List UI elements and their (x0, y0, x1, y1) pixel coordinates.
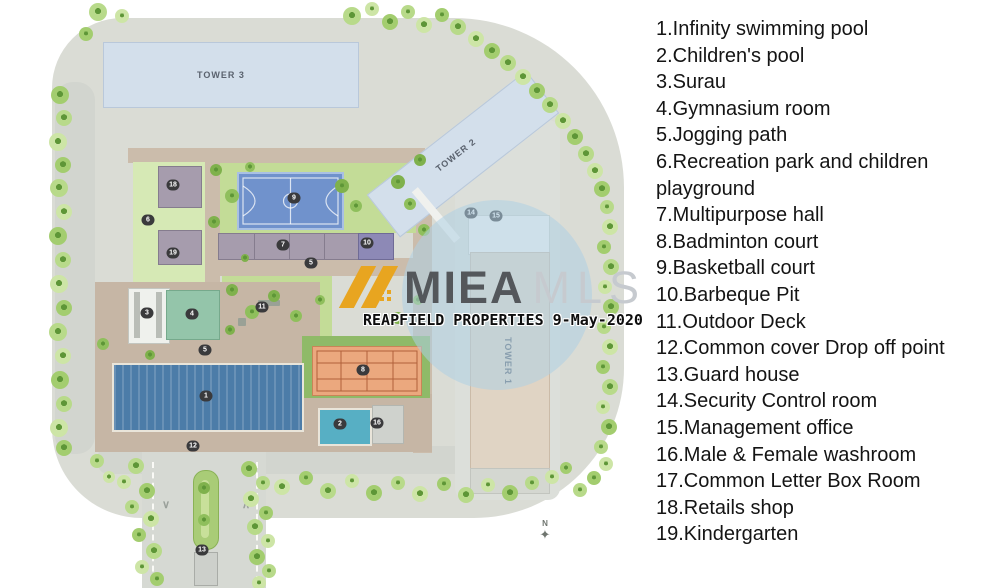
tree-icon (596, 400, 610, 414)
plan-marker: 19 (167, 248, 180, 259)
plan-marker: 2 (334, 419, 347, 430)
plan-marker: 7 (277, 240, 290, 251)
tree-icon (391, 476, 405, 490)
tree-icon (274, 479, 290, 495)
legend-list: 1.Infinity swimming pool 2.Children's po… (656, 16, 1000, 548)
tree-icon (587, 163, 603, 179)
tree-icon (125, 500, 139, 514)
plan-marker: 12 (187, 441, 200, 452)
tree-icon (198, 514, 210, 526)
tree-icon (56, 300, 72, 316)
legend-item: 19.Kindergarten (656, 521, 1000, 548)
tree-icon (208, 216, 220, 228)
tree-icon (49, 227, 67, 245)
watermark-brand-primary: MIEA (404, 265, 525, 310)
tree-icon (132, 528, 146, 542)
retail-shop-block (158, 166, 202, 208)
plan-marker: 4 (186, 309, 199, 320)
kindergarten-block (158, 230, 202, 265)
tree-icon (49, 323, 67, 341)
surau-column (134, 292, 140, 338)
plan-marker: 5 (305, 258, 318, 269)
legend-item: 10.Barbeque Pit (656, 282, 1000, 309)
tree-icon (97, 338, 109, 350)
plan-marker: 1 (200, 391, 213, 402)
tree-icon (412, 486, 428, 502)
tree-icon (345, 474, 359, 488)
tree-icon (259, 506, 273, 520)
tree-icon (115, 9, 129, 23)
plan-marker: 8 (357, 365, 370, 376)
tree-icon (484, 43, 500, 59)
tree-icon (145, 350, 155, 360)
tree-icon (555, 113, 571, 129)
tree-icon (502, 485, 518, 501)
tree-icon (103, 471, 115, 483)
jogging-path-top (128, 148, 425, 163)
exit-arrow-icon: ∨ (162, 498, 170, 511)
tree-icon (599, 457, 613, 471)
tree-icon (481, 478, 495, 492)
legend-item: 2.Children's pool (656, 43, 1000, 70)
plan-marker: 13 (196, 545, 209, 556)
legend-item: 9.Basketball court (656, 255, 1000, 282)
tree-icon (55, 157, 71, 173)
tree-icon (225, 325, 235, 335)
watermark-brand: MIEA MLS (340, 262, 646, 310)
legend-item: 11.Outdoor Deck (656, 309, 1000, 336)
tree-icon (602, 339, 618, 355)
tree-icon (602, 219, 618, 235)
tree-icon (139, 483, 155, 499)
playground-equipment (238, 318, 246, 326)
tree-icon (529, 83, 545, 99)
tree-icon (458, 487, 474, 503)
tree-icon (600, 200, 614, 214)
legend-item: 16.Male & Female washroom (656, 442, 1000, 469)
legend-item: 6.Recreation park and children playgroun… (656, 149, 1000, 202)
legend-item: 12.Common cover Drop off point (656, 335, 1000, 362)
legend-item: 8.Badminton court (656, 229, 1000, 256)
tree-icon (382, 14, 398, 30)
tree-icon (51, 371, 69, 389)
tree-icon (117, 475, 131, 489)
screenshot-root: ∨ ∧ TOWER 3 TOWER 2 TOWER 1 (0, 0, 1000, 588)
tree-icon (50, 275, 68, 293)
tree-icon (261, 534, 275, 548)
tree-icon (525, 476, 539, 490)
plan-marker: 18 (167, 180, 180, 191)
tree-icon (587, 471, 601, 485)
legend-item: 5.Jogging path (656, 122, 1000, 149)
tree-icon (435, 8, 449, 22)
tree-icon (437, 477, 451, 491)
tree-icon (245, 162, 255, 172)
tree-icon (500, 55, 516, 71)
legend-item: 1.Infinity swimming pool (656, 16, 1000, 43)
tree-icon (146, 543, 162, 559)
guard-house (194, 552, 218, 586)
watermark-brand-secondary: MLS (533, 265, 647, 310)
miea-logo-icon (340, 264, 398, 310)
tree-icon (404, 198, 416, 210)
legend-item: 7.Multipurpose hall (656, 202, 1000, 229)
tree-icon (55, 252, 71, 268)
tree-icon (365, 2, 379, 16)
tree-icon (335, 179, 349, 193)
tree-icon (601, 419, 617, 435)
surau-column (156, 292, 162, 338)
tree-icon (594, 440, 608, 454)
tree-icon (262, 564, 276, 578)
tree-icon (320, 483, 336, 499)
tree-icon (56, 396, 72, 412)
tree-icon (56, 440, 72, 456)
tree-icon (241, 461, 257, 477)
plan-marker: 11 (256, 302, 269, 313)
site-plan: ∨ ∧ TOWER 3 TOWER 2 TOWER 1 (0, 0, 650, 588)
tree-icon (597, 240, 611, 254)
tree-icon (542, 97, 558, 113)
tree-icon (578, 146, 594, 162)
tree-icon (343, 7, 361, 25)
legend-item: 4.Gymnasium room (656, 96, 1000, 123)
tree-icon (366, 485, 382, 501)
plan-marker: 3 (141, 308, 154, 319)
tree-icon (249, 549, 265, 565)
tree-icon (468, 31, 484, 47)
legend-item: 18.Retails shop (656, 495, 1000, 522)
watermark-tagline: REAPFIELD PROPERTIES 9-May-2020 (363, 311, 643, 329)
tree-icon (252, 576, 266, 588)
tree-icon (51, 86, 69, 104)
plan-marker: 10 (361, 238, 374, 249)
tree-icon (560, 462, 572, 474)
tree-icon (290, 310, 302, 322)
tree-icon (226, 284, 238, 296)
tree-icon (49, 133, 67, 151)
tree-icon (198, 482, 210, 494)
legend-item: 17.Common Letter Box Room (656, 468, 1000, 495)
tree-icon (256, 476, 270, 490)
tree-icon (225, 189, 239, 203)
tree-icon (50, 419, 68, 437)
tree-icon (596, 360, 610, 374)
tree-icon (414, 154, 426, 166)
plan-marker: 6 (142, 215, 155, 226)
tree-icon (210, 164, 222, 176)
tree-icon (268, 290, 280, 302)
tree-icon (602, 379, 618, 395)
plan-marker: 9 (288, 193, 301, 204)
tree-icon (241, 254, 249, 262)
tree-icon (128, 458, 144, 474)
tree-icon (243, 491, 259, 507)
tree-icon (391, 175, 405, 189)
legend-item: 14.Security Control room (656, 388, 1000, 415)
legend-item: 15.Management office (656, 415, 1000, 442)
legend-item: 3.Surau (656, 69, 1000, 96)
tree-icon (594, 181, 610, 197)
compass-icon: N ✦ (538, 520, 552, 541)
tree-icon (56, 204, 72, 220)
tree-icon (416, 17, 432, 33)
tree-icon (545, 470, 559, 484)
tree-icon (315, 295, 325, 305)
tree-icon (299, 471, 313, 485)
tree-icon (135, 560, 149, 574)
tree-icon (150, 572, 164, 586)
tree-icon (143, 511, 159, 527)
tower-3-label: TOWER 3 (197, 70, 245, 80)
tree-icon (515, 69, 531, 85)
tree-icon (50, 179, 68, 197)
tree-icon (79, 27, 93, 41)
tree-icon (90, 454, 104, 468)
plan-marker: 5 (199, 345, 212, 356)
tree-icon (401, 5, 415, 19)
tree-icon (56, 110, 72, 126)
tree-icon (350, 200, 362, 212)
plan-marker: 16 (371, 418, 384, 429)
tree-icon (573, 483, 587, 497)
tree-icon (450, 19, 466, 35)
tree-icon (55, 348, 71, 364)
tree-icon (247, 519, 263, 535)
tree-icon (567, 129, 583, 145)
legend-item: 13.Guard house (656, 362, 1000, 389)
tree-icon (89, 3, 107, 21)
